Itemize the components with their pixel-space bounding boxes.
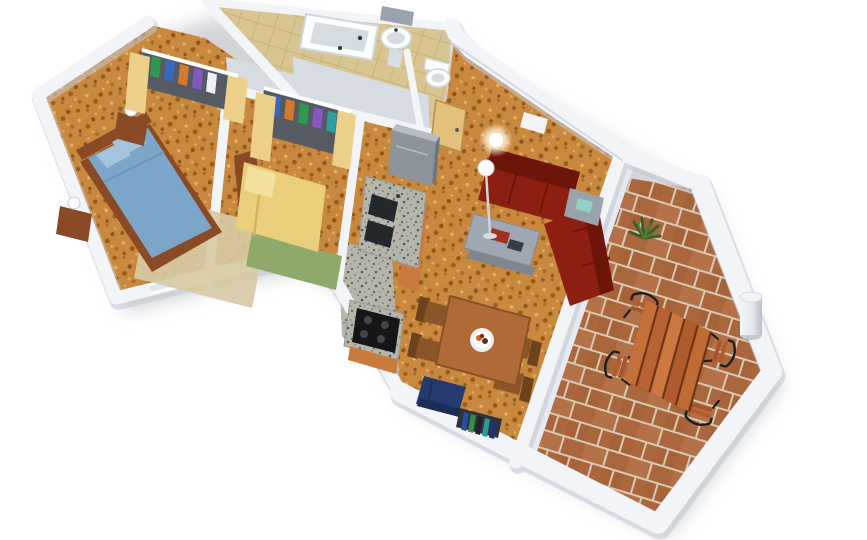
door-handle <box>455 128 459 132</box>
column <box>740 292 762 340</box>
wall-light <box>479 123 513 157</box>
room-wc: WC <box>424 58 450 87</box>
floorplan-svg: 3D isometric render of an apartment floo… <box>0 0 867 540</box>
burner <box>381 321 389 329</box>
burner <box>377 335 385 343</box>
burner <box>360 330 368 338</box>
burner <box>364 316 372 324</box>
table-lamp <box>68 197 80 209</box>
floorplan-3d-render: 3D isometric render of an apartment floo… <box>0 0 867 540</box>
